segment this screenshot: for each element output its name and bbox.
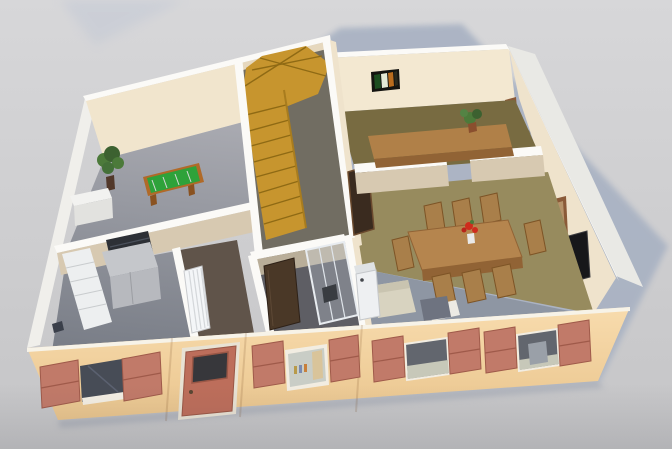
window-2-bottle	[304, 364, 307, 372]
dining-chair	[480, 193, 501, 224]
window-2-curtain	[312, 350, 323, 380]
bottom-vignette	[0, 384, 672, 449]
window-4-side-cube	[528, 341, 548, 365]
floor-plan-3d-view[interactable]	[0, 0, 672, 449]
table-leg	[150, 194, 157, 206]
vase	[467, 233, 475, 244]
appliance-dial	[360, 278, 364, 282]
window-2-bottle	[294, 366, 297, 374]
grey-ottoman	[420, 296, 451, 321]
table-leg	[188, 184, 195, 196]
open-bathroom-door	[264, 258, 300, 330]
window-2-bottle	[299, 365, 302, 373]
render-canvas	[0, 0, 672, 449]
striped-wall-picture	[371, 69, 400, 92]
door-glass	[192, 352, 228, 383]
